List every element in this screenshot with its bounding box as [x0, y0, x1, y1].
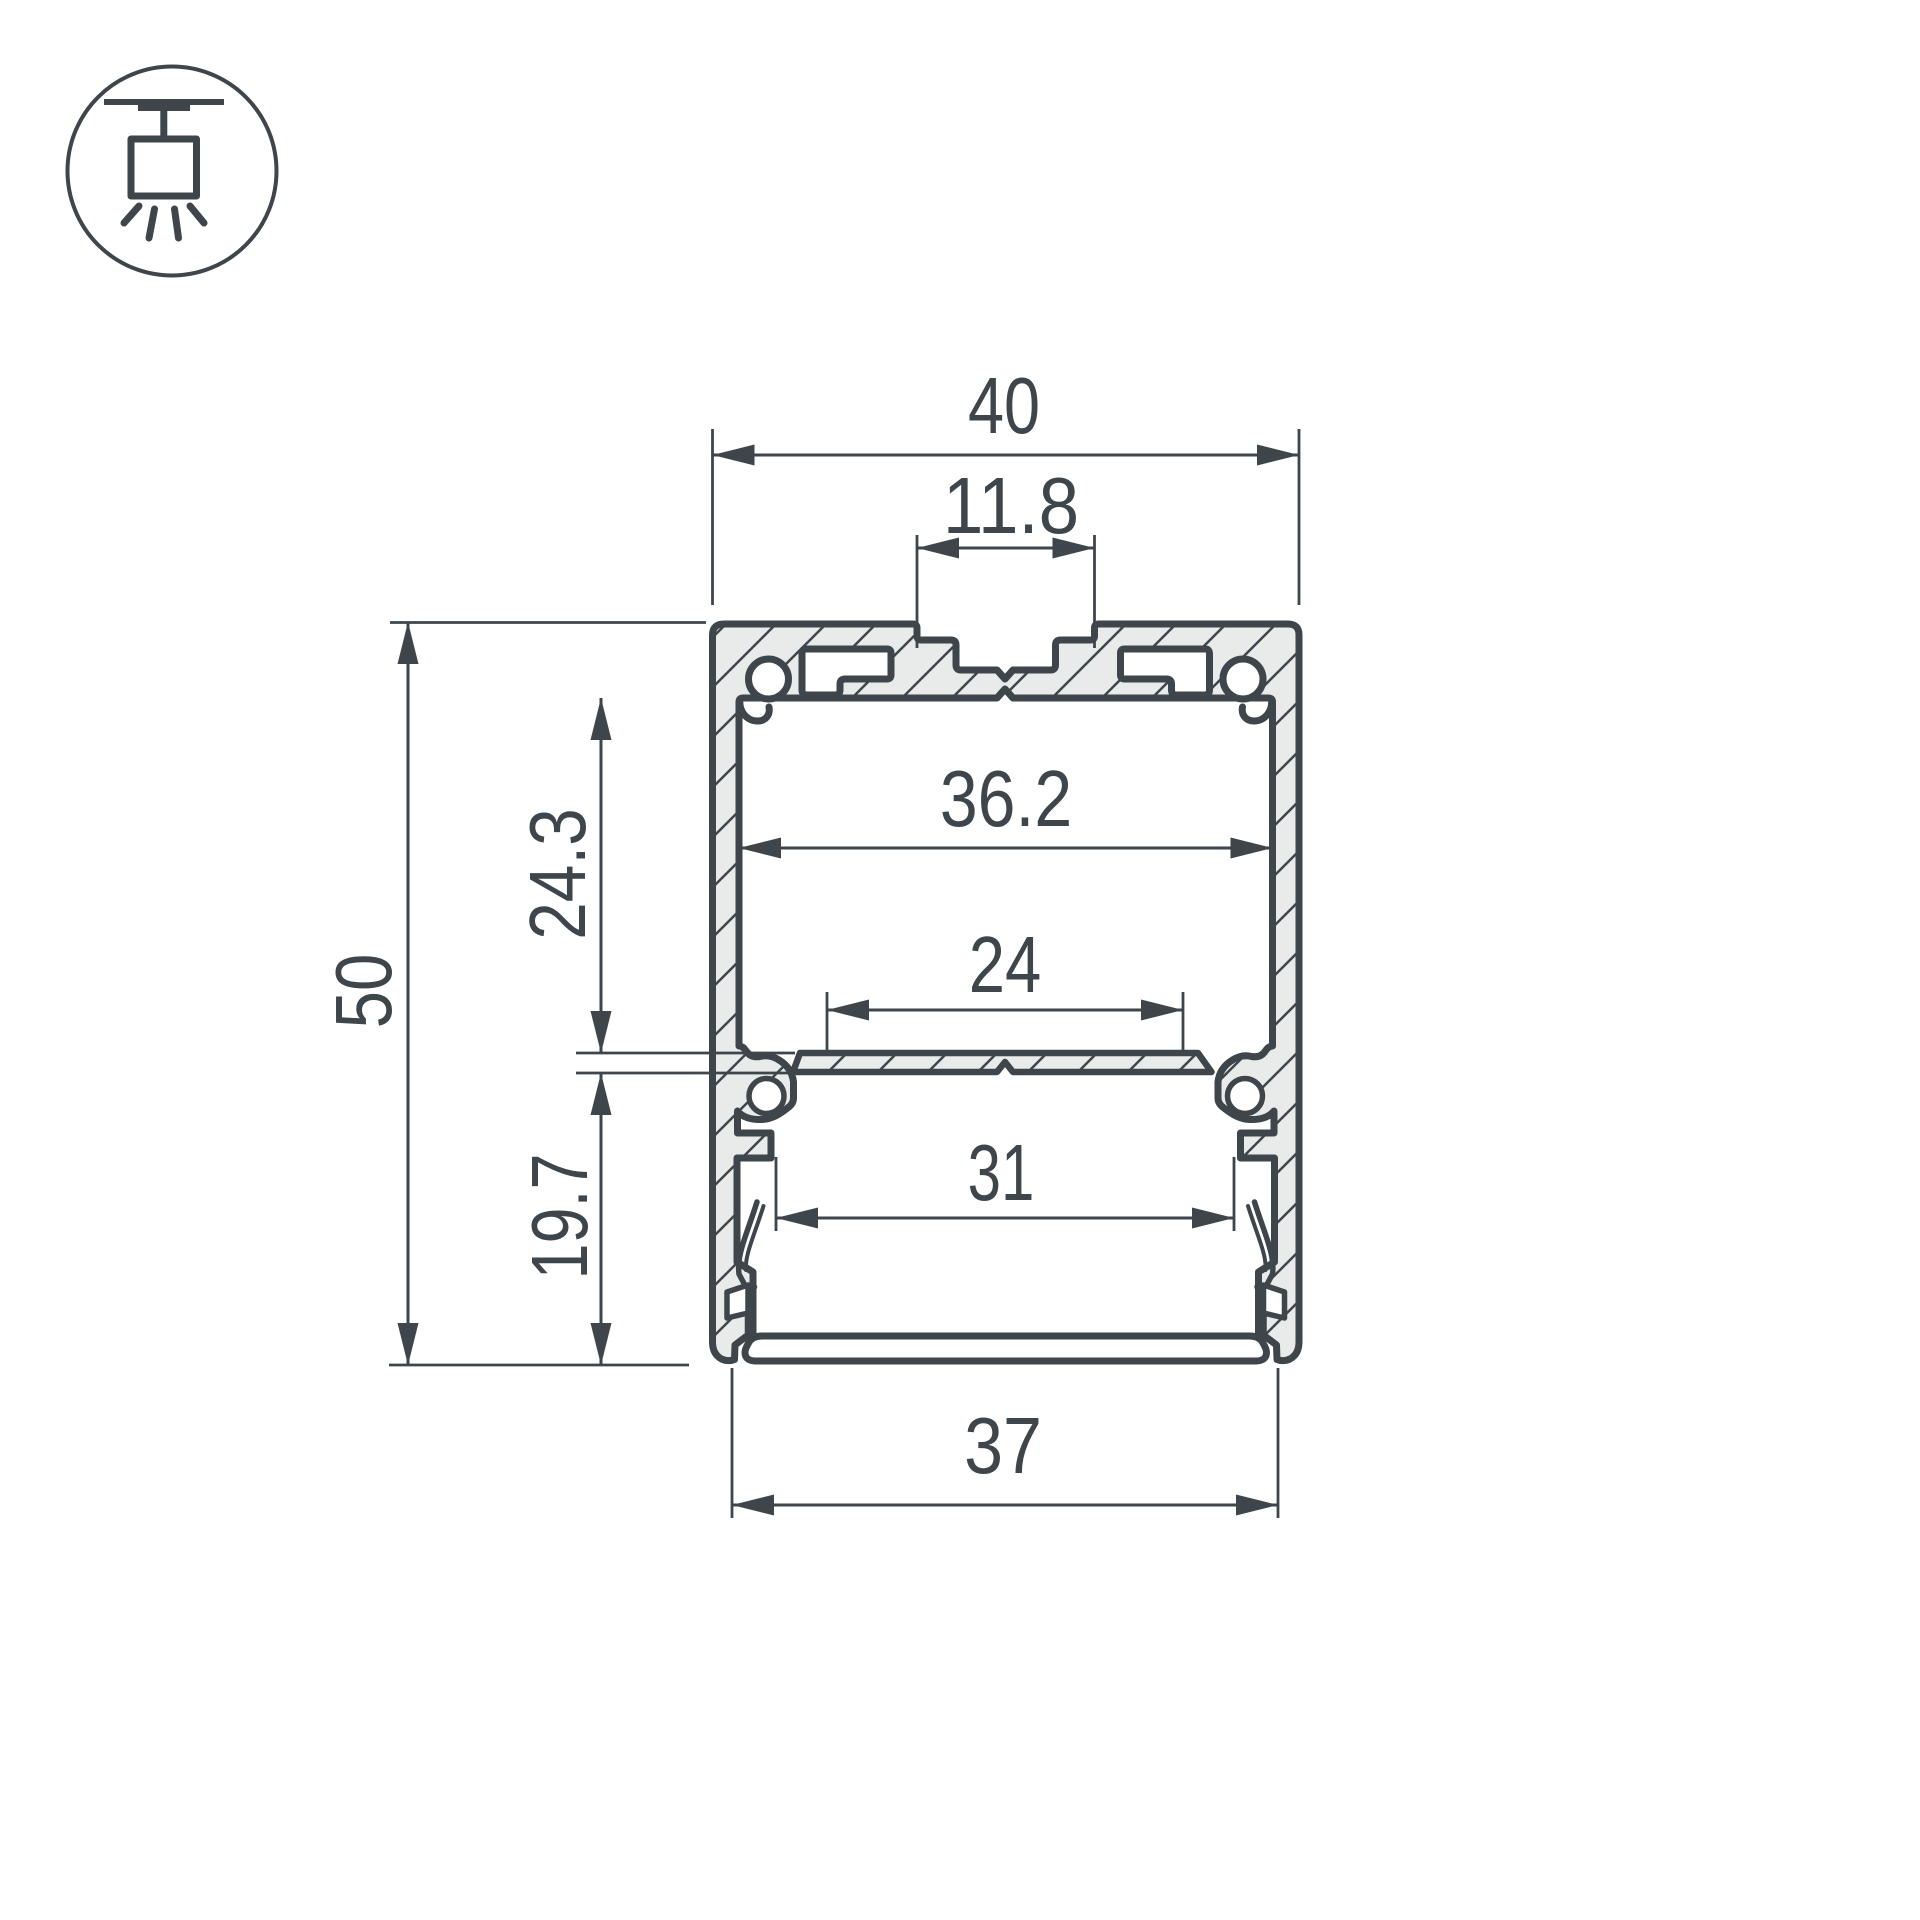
svg-text:50: 50 [318, 954, 408, 1029]
svg-text:24.3: 24.3 [513, 808, 603, 940]
svg-text:19.7: 19.7 [516, 1153, 605, 1279]
svg-text:37: 37 [964, 1401, 1042, 1490]
svg-text:36.2: 36.2 [940, 754, 1072, 843]
svg-text:31: 31 [968, 1128, 1035, 1217]
svg-text:11.8: 11.8 [943, 462, 1079, 551]
svg-text:40: 40 [968, 362, 1040, 451]
svg-text:24: 24 [969, 921, 1042, 1010]
